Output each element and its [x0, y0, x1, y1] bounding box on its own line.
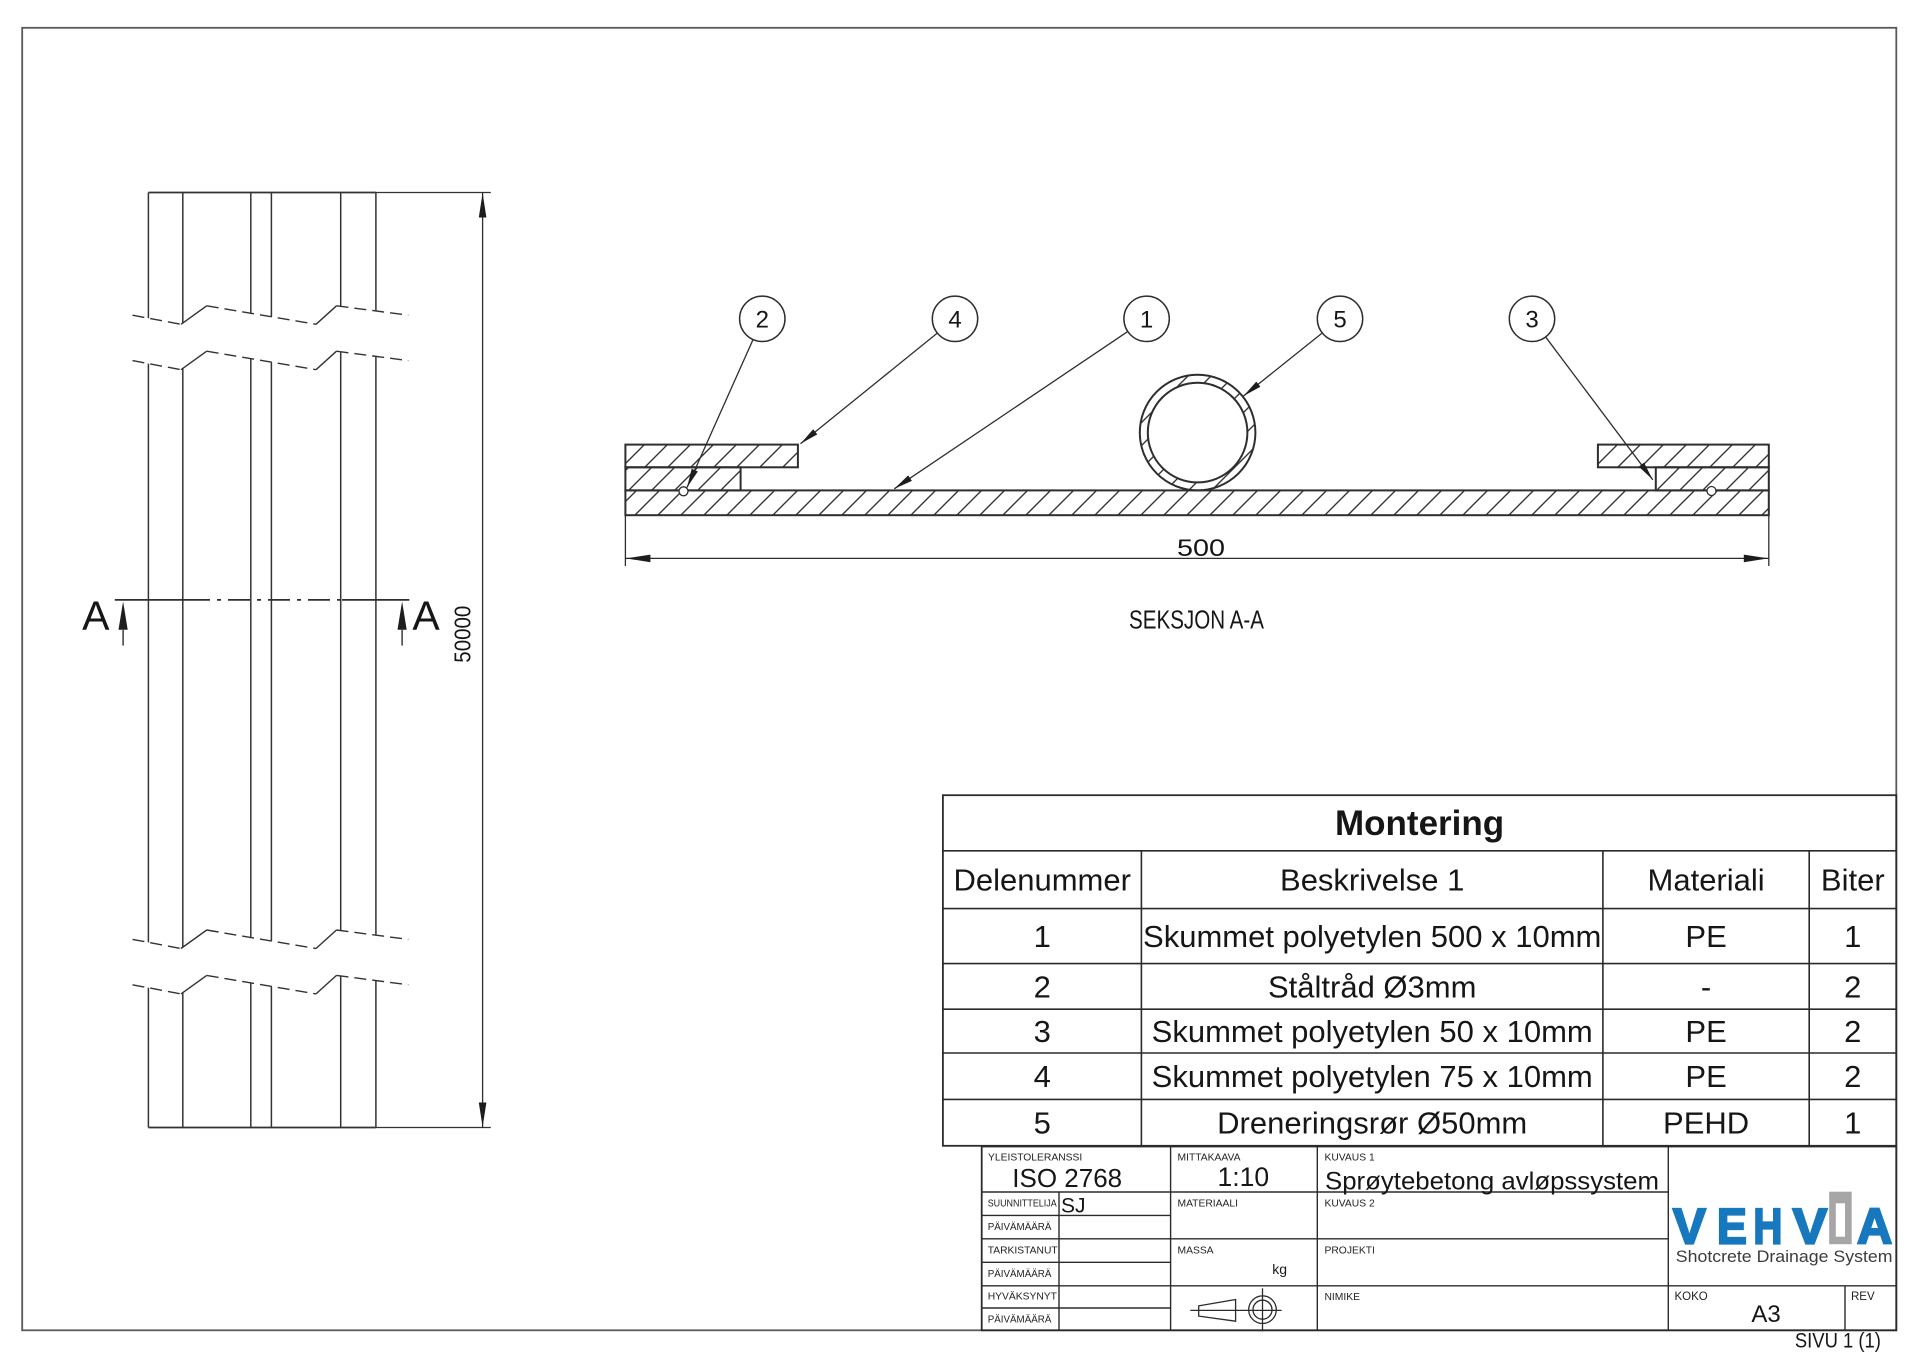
svg-text:A3: A3: [1751, 1301, 1780, 1328]
svg-text:PE: PE: [1685, 1014, 1726, 1049]
svg-text:PÄIVÄMÄÄRÄ: PÄIVÄMÄÄRÄ: [988, 1222, 1052, 1233]
svg-text:PROJEKTI: PROJEKTI: [1325, 1245, 1375, 1256]
svg-text:500: 500: [1177, 535, 1225, 562]
svg-text:Biter: Biter: [1821, 863, 1885, 898]
svg-text:2: 2: [1844, 1059, 1861, 1094]
svg-text:YLEISTOLERANSSI: YLEISTOLERANSSI: [988, 1153, 1082, 1164]
svg-text:Skummet polyetylen 75 x 10mm: Skummet polyetylen 75 x 10mm: [1152, 1059, 1593, 1094]
svg-text:REV: REV: [1851, 1291, 1875, 1303]
svg-text:3: 3: [1034, 1014, 1051, 1049]
svg-text:kg: kg: [1272, 1261, 1287, 1277]
svg-text:PE: PE: [1685, 919, 1726, 954]
svg-text:KUVAUS 2: KUVAUS 2: [1325, 1199, 1375, 1210]
svg-text:5: 5: [1034, 1106, 1051, 1141]
svg-text:Skummet polyetylen 500 x 10mm: Skummet polyetylen 500 x 10mm: [1143, 919, 1601, 954]
svg-text:2: 2: [1844, 969, 1861, 1004]
svg-text:Beskrivelse 1: Beskrivelse 1: [1280, 863, 1464, 898]
svg-text:-: -: [1701, 969, 1711, 1004]
svg-text:1: 1: [1844, 1106, 1861, 1141]
svg-text:Delenummer: Delenummer: [953, 863, 1130, 898]
svg-text:SUUNNITTELIJA: SUUNNITTELIJA: [988, 1199, 1057, 1210]
svg-text:3: 3: [1525, 306, 1538, 333]
svg-text:PE: PE: [1685, 1059, 1726, 1094]
svg-text:MASSA: MASSA: [1178, 1245, 1214, 1256]
svg-text:A: A: [82, 593, 110, 639]
svg-text:1: 1: [1140, 306, 1153, 333]
svg-text:2: 2: [1844, 1014, 1861, 1049]
svg-text:SJ: SJ: [1061, 1195, 1086, 1218]
svg-text:2: 2: [756, 306, 769, 333]
svg-text:2: 2: [1034, 969, 1051, 1004]
svg-text:Materiali: Materiali: [1648, 863, 1765, 898]
svg-text:1: 1: [1844, 919, 1861, 954]
svg-text:KOKO: KOKO: [1675, 1291, 1708, 1303]
svg-text:50000: 50000: [450, 606, 476, 663]
svg-text:ISO 2768: ISO 2768: [1012, 1163, 1122, 1193]
svg-text:Ståltråd Ø3mm: Ståltråd Ø3mm: [1268, 969, 1476, 1004]
svg-text:5: 5: [1333, 306, 1346, 333]
svg-text:Dreneringsrør Ø50mm: Dreneringsrør Ø50mm: [1217, 1106, 1527, 1141]
svg-text:PEHD: PEHD: [1663, 1106, 1749, 1141]
svg-text:1: 1: [1034, 919, 1051, 954]
svg-text:Montering: Montering: [1335, 804, 1504, 843]
svg-text:Sprøytebetong avløpssystem: Sprøytebetong avløpssystem: [1325, 1168, 1659, 1196]
svg-text:SEKSJON A-A: SEKSJON A-A: [1129, 604, 1265, 634]
svg-text:KUVAUS 1: KUVAUS 1: [1325, 1153, 1375, 1164]
svg-text:HYVÄKSYNYT: HYVÄKSYNYT: [988, 1291, 1058, 1303]
svg-text:4: 4: [1034, 1059, 1051, 1094]
svg-text:PÄIVÄMÄÄRÄ: PÄIVÄMÄÄRÄ: [988, 1269, 1052, 1280]
svg-text:MATERIAALI: MATERIAALI: [1178, 1199, 1238, 1210]
svg-text:NIMIKE: NIMIKE: [1325, 1292, 1361, 1303]
svg-text:A: A: [412, 593, 440, 639]
svg-text:TARKISTANUT: TARKISTANUT: [988, 1245, 1059, 1256]
svg-text:Skummet polyetylen 50 x 10mm: Skummet polyetylen 50 x 10mm: [1152, 1014, 1593, 1049]
svg-text:1:10: 1:10: [1218, 1162, 1270, 1192]
svg-text:PÄIVÄMÄÄRÄ: PÄIVÄMÄÄRÄ: [988, 1314, 1052, 1325]
svg-text:Shotcrete Drainage System: Shotcrete Drainage System: [1676, 1247, 1893, 1266]
svg-text:4: 4: [948, 306, 961, 333]
svg-text:SIVU 1 (1): SIVU 1 (1): [1795, 1329, 1881, 1353]
